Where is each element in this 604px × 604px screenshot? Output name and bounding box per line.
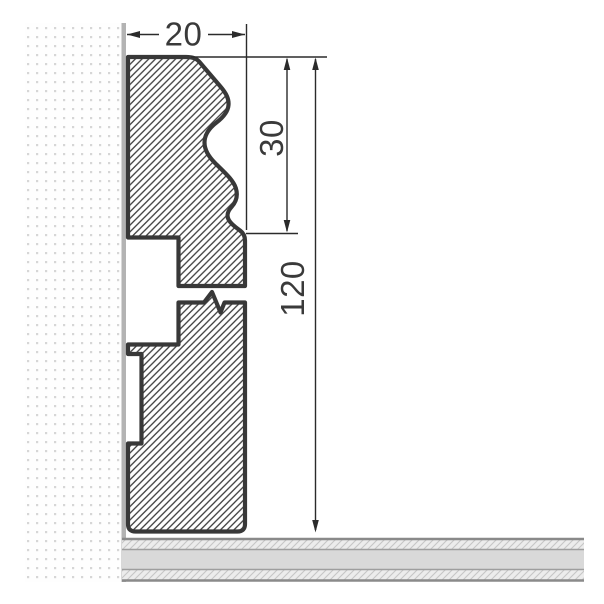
skirting-profile-upper [128,57,245,286]
skirting-board-section-drawing: 20 30 120 [0,0,604,604]
drawing-canvas: 20 30 120 [0,0,604,604]
arrow-left-icon [127,31,140,38]
dimension-total-height-label: 120 [274,260,311,317]
arrow-up-120-icon [312,58,319,71]
arrow-down-30-icon [284,220,291,233]
dimension-width-label: 20 [165,16,203,53]
wall-section [25,23,126,582]
arrow-up-30-icon [284,58,291,71]
skirting-profile-lower [128,292,245,532]
wall-surface-line [122,23,127,582]
floor-core-layer [122,549,584,570]
arrow-down-120-icon [312,520,319,533]
arrow-right-icon [232,31,245,38]
floor-bottom-layer [122,570,584,580]
floor-section [122,539,584,581]
wall-hatch [25,23,122,582]
floor-top-layer [122,539,584,549]
dimension-ogee-height-label: 30 [253,119,290,157]
